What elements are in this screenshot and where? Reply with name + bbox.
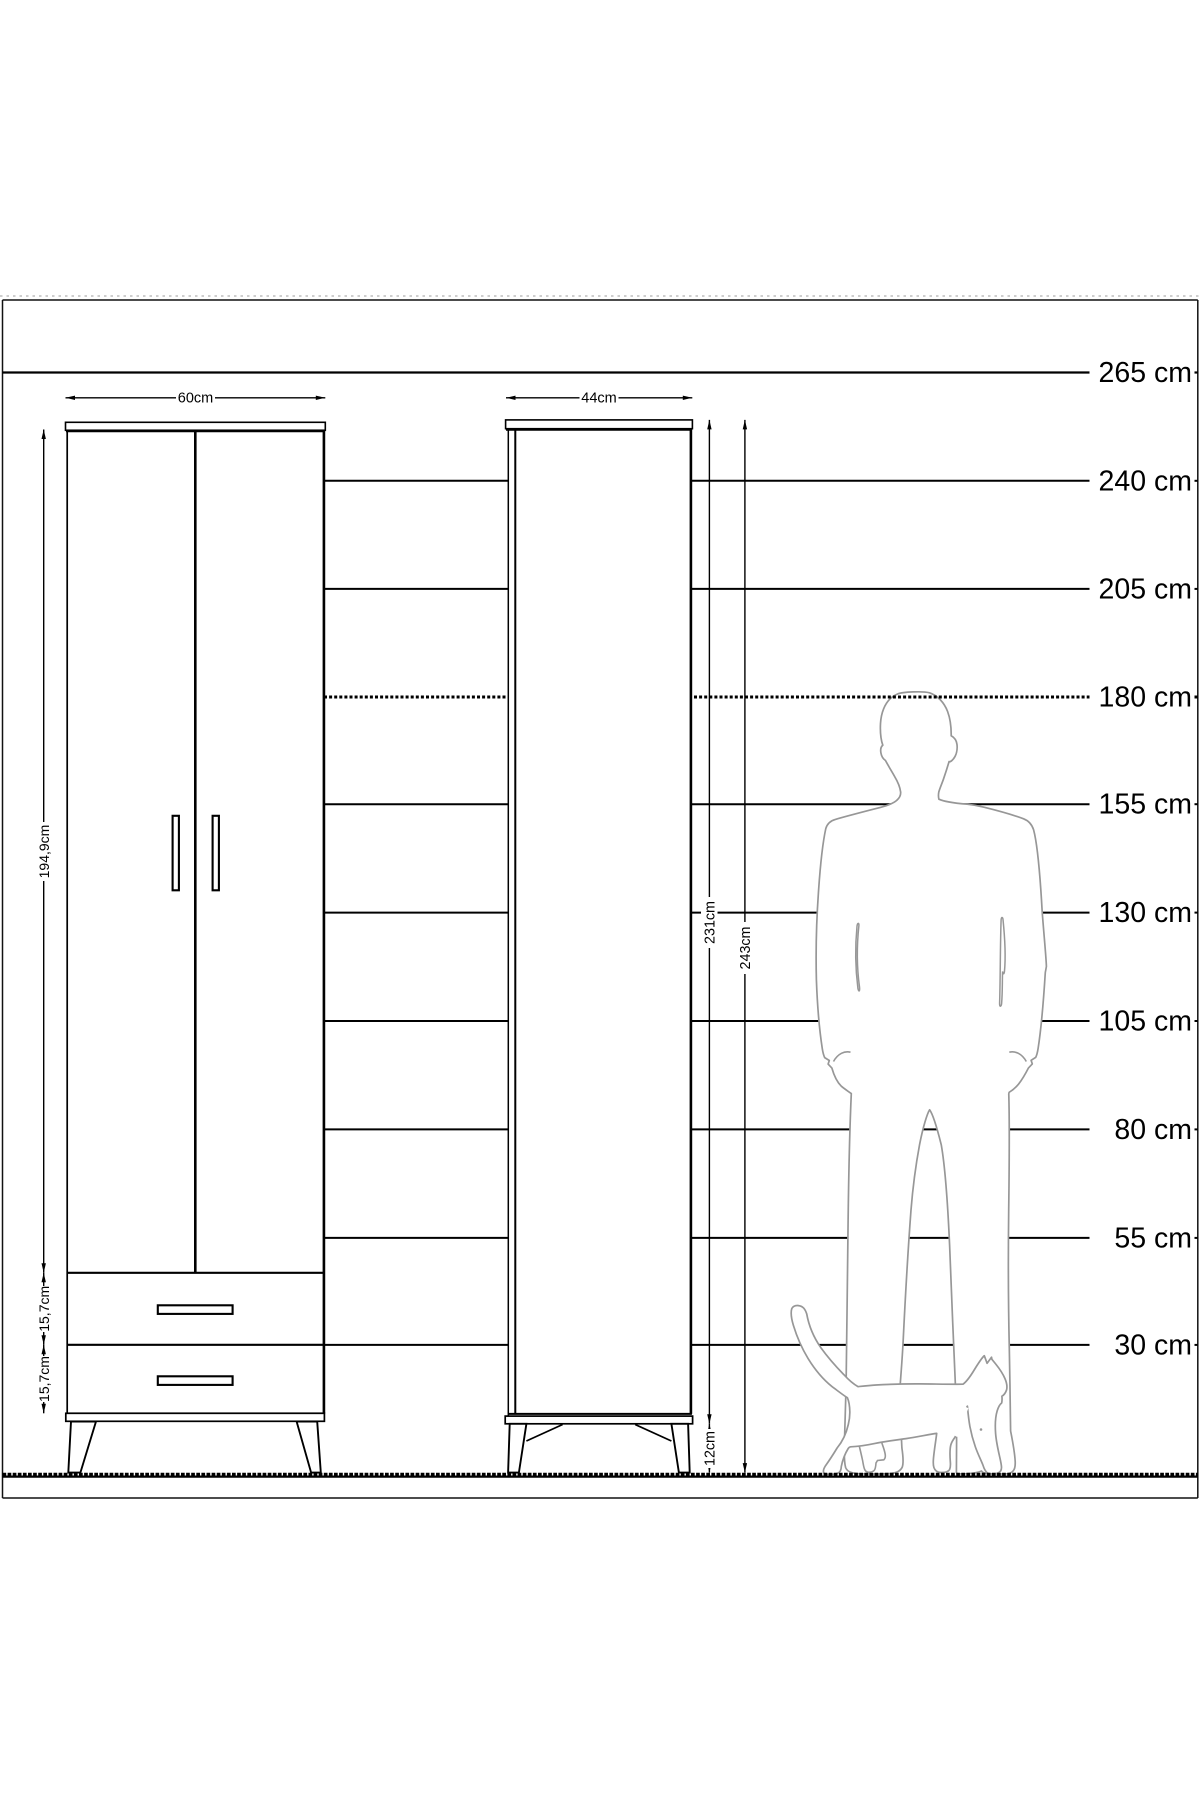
svg-text:44cm: 44cm xyxy=(581,391,616,407)
svg-text:15,7cm: 15,7cm xyxy=(36,1356,52,1402)
svg-text:155 cm: 155 cm xyxy=(1099,789,1192,821)
svg-text:80 cm: 80 cm xyxy=(1114,1114,1192,1146)
svg-text:231cm: 231cm xyxy=(702,901,718,944)
svg-text:105 cm: 105 cm xyxy=(1099,1006,1192,1038)
svg-text:205 cm: 205 cm xyxy=(1099,573,1192,605)
svg-text:180 cm: 180 cm xyxy=(1099,682,1192,714)
svg-text:55 cm: 55 cm xyxy=(1114,1222,1192,1254)
svg-text:240 cm: 240 cm xyxy=(1099,465,1192,497)
svg-text:194,9cm: 194,9cm xyxy=(36,825,52,879)
svg-text:130 cm: 130 cm xyxy=(1099,897,1192,929)
svg-text:12cm: 12cm xyxy=(702,1431,718,1466)
svg-text:15,7cm: 15,7cm xyxy=(36,1286,52,1332)
svg-text:265 cm: 265 cm xyxy=(1099,357,1192,389)
svg-text:60cm: 60cm xyxy=(178,391,213,407)
svg-text:30 cm: 30 cm xyxy=(1114,1329,1192,1361)
svg-text:243cm: 243cm xyxy=(738,927,754,970)
